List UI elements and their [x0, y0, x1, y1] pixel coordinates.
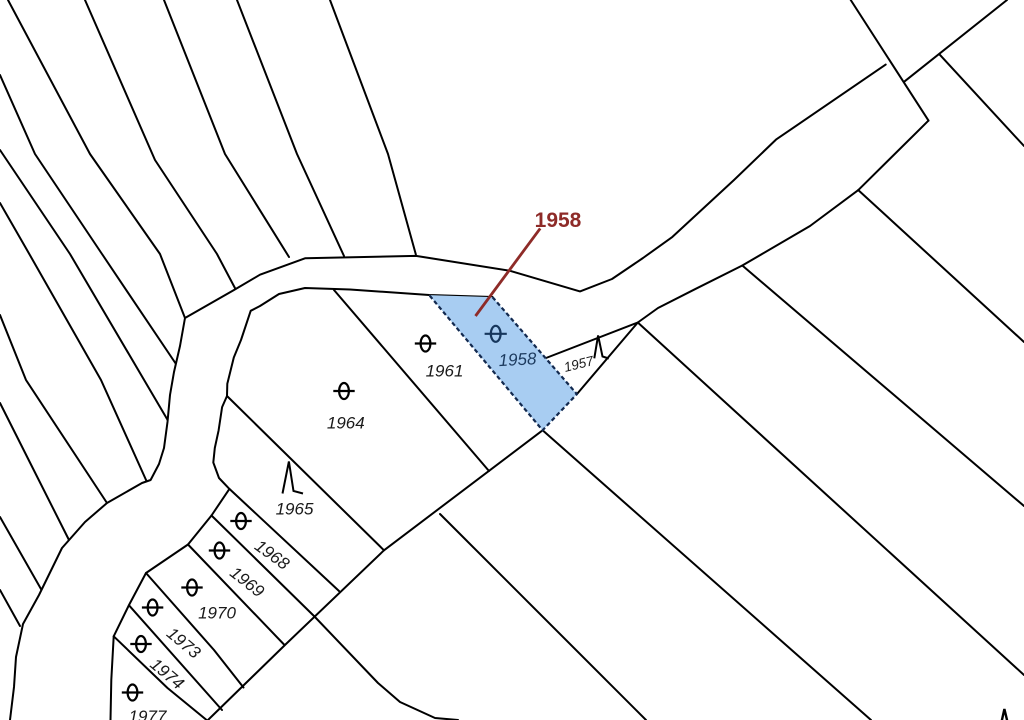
- svg-text:1977: 1977: [129, 707, 167, 720]
- svg-text:1973: 1973: [163, 624, 205, 663]
- svg-text:1961: 1961: [426, 362, 464, 381]
- svg-text:1964: 1964: [327, 413, 365, 432]
- svg-text:1970: 1970: [198, 604, 236, 623]
- svg-text:1958: 1958: [498, 349, 537, 370]
- svg-text:1958: 1958: [535, 209, 582, 232]
- svg-text:1957: 1957: [562, 353, 595, 375]
- svg-text:1969: 1969: [226, 563, 268, 602]
- svg-text:1965: 1965: [276, 500, 314, 519]
